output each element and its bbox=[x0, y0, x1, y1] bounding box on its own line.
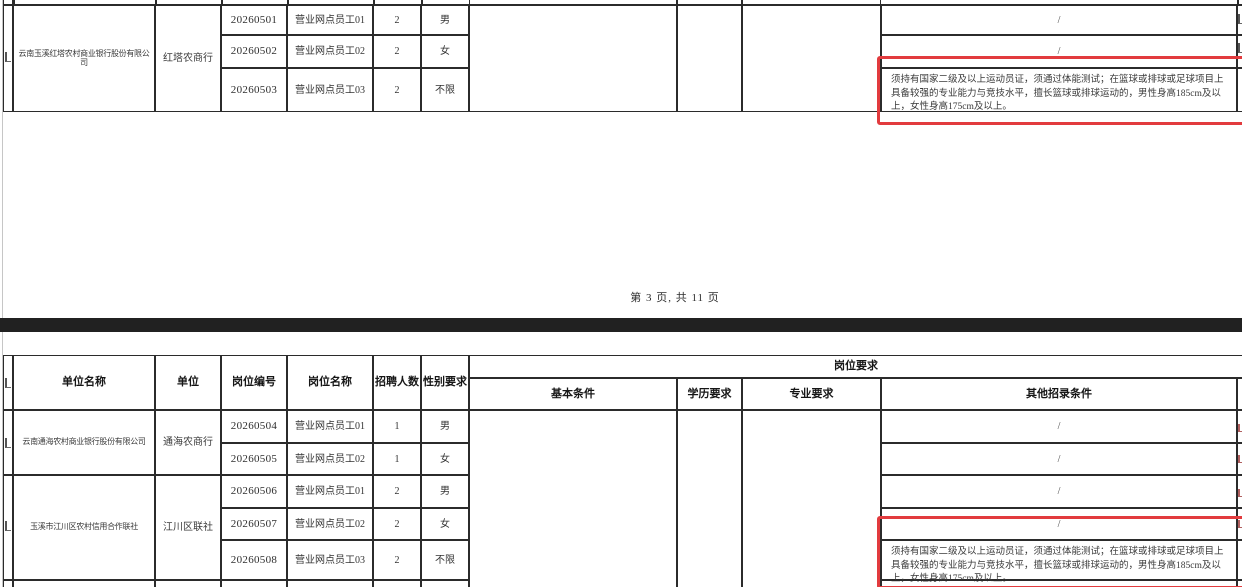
post-code-cell: 20260504 bbox=[221, 410, 287, 443]
clipped-text-fragment bbox=[1238, 424, 1242, 432]
post-name-cell: 营业网点员工03 bbox=[287, 68, 373, 112]
post-name-cell: 营业网点员工02 bbox=[287, 443, 373, 475]
post-name-cell: 营业网点员工03 bbox=[287, 540, 373, 580]
clipped-column-cell bbox=[1237, 378, 1242, 410]
clipped-row-cell bbox=[221, 580, 287, 587]
gender-cell: 女 bbox=[421, 443, 469, 475]
other-conditions-cell: / bbox=[881, 475, 1237, 508]
recruit-count-cell: 2 bbox=[373, 5, 421, 35]
basic-conditions-empty-cell bbox=[469, 410, 677, 587]
header-unit-name: 单位名称 bbox=[13, 355, 155, 410]
clipped-text-fragment bbox=[1238, 489, 1242, 497]
clipped-text-fragment bbox=[5, 378, 11, 388]
post-code-cell: 20260505 bbox=[221, 443, 287, 475]
basic-conditions-empty-cell bbox=[469, 0, 677, 112]
red-highlight-box bbox=[877, 56, 1242, 125]
unit-short-name-cell: 红塔农商行 bbox=[155, 5, 221, 112]
other-conditions-cell: / bbox=[881, 5, 1237, 35]
company-name-cell: 云南通海农村商业银行股份有限公司 bbox=[13, 410, 155, 475]
table-border-line bbox=[13, 0, 15, 4]
company-name-cell: 云南玉溪红塔农村商业银行股份有限公司 bbox=[13, 5, 155, 112]
company-name-cell: 玉溪市江川区农村信用合作联社 bbox=[13, 475, 155, 580]
recruit-count-cell: 2 bbox=[373, 540, 421, 580]
header-post-name: 岗位名称 bbox=[287, 355, 373, 410]
table-border-line bbox=[155, 0, 157, 4]
table-border-line bbox=[373, 0, 375, 4]
recruit-count-cell: 1 bbox=[373, 410, 421, 443]
gender-cell: 女 bbox=[421, 35, 469, 68]
recruit-count-cell: 2 bbox=[373, 475, 421, 508]
header-education-req: 学历要求 bbox=[677, 378, 742, 410]
header-other-conditions: 其他招录条件 bbox=[881, 378, 1237, 410]
clipped-row-cell bbox=[13, 580, 155, 587]
clipped-text-fragment bbox=[5, 521, 11, 531]
gender-cell: 男 bbox=[421, 5, 469, 35]
major-req-empty-cell bbox=[742, 0, 881, 112]
recruit-count-cell: 1 bbox=[373, 443, 421, 475]
gender-cell: 男 bbox=[421, 410, 469, 443]
post-name-cell: 营业网点员工02 bbox=[287, 35, 373, 68]
table-border-line bbox=[221, 0, 223, 4]
clipped-text-fragment bbox=[1238, 455, 1242, 463]
post-name-cell: 营业网点员工02 bbox=[287, 508, 373, 540]
recruit-count-cell: 2 bbox=[373, 68, 421, 112]
recruit-count-cell: 2 bbox=[373, 35, 421, 68]
header-post-requirements-group: 岗位要求 bbox=[469, 355, 1242, 378]
other-conditions-cell: / bbox=[881, 410, 1237, 443]
clipped-row-cell bbox=[3, 580, 13, 587]
red-highlight-box bbox=[877, 516, 1242, 587]
recruit-count-cell: 2 bbox=[373, 508, 421, 540]
clipped-text-fragment bbox=[1238, 14, 1242, 24]
clipped-row-cell bbox=[373, 580, 421, 587]
header-recruit-count: 招聘人数 bbox=[373, 355, 421, 410]
other-conditions-cell: / bbox=[881, 443, 1237, 475]
clipped-text-fragment bbox=[5, 438, 11, 448]
header-unit: 单位 bbox=[155, 355, 221, 410]
post-code-cell: 20260503 bbox=[221, 68, 287, 112]
gender-cell: 男 bbox=[421, 475, 469, 508]
post-name-cell: 营业网点员工01 bbox=[287, 475, 373, 508]
education-req-empty-cell bbox=[677, 0, 742, 112]
clipped-row-cell bbox=[421, 580, 469, 587]
clipped-row-cell bbox=[155, 580, 221, 587]
unit-short-name-cell: 通海农商行 bbox=[155, 410, 221, 475]
unit-short-name-cell: 江川区联社 bbox=[155, 475, 221, 580]
document-viewer: 云南玉溪红塔农村商业银行股份有限公司 红塔农商行 20260501 营业网点员工… bbox=[0, 0, 1242, 587]
page-separator-bar bbox=[0, 318, 1242, 332]
table-border-line bbox=[421, 0, 423, 4]
page-number: 第 3 页, 共 11 页 bbox=[350, 289, 1000, 305]
header-major-req: 专业要求 bbox=[742, 378, 881, 410]
post-name-cell: 营业网点员工01 bbox=[287, 410, 373, 443]
post-code-cell: 20260507 bbox=[221, 508, 287, 540]
table-border-line bbox=[287, 0, 289, 4]
post-code-cell: 20260501 bbox=[221, 5, 287, 35]
education-req-empty-cell bbox=[677, 410, 742, 587]
clipped-text-fragment bbox=[5, 52, 11, 62]
gender-cell: 不限 bbox=[421, 68, 469, 112]
post-code-cell: 20260502 bbox=[221, 35, 287, 68]
major-req-empty-cell bbox=[742, 410, 881, 587]
table-border-line bbox=[1237, 0, 1239, 4]
post-code-cell: 20260508 bbox=[221, 540, 287, 580]
header-gender-req: 性别要求 bbox=[421, 355, 469, 410]
gender-cell: 女 bbox=[421, 508, 469, 540]
clipped-text-fragment bbox=[1238, 43, 1242, 53]
header-post-code: 岗位编号 bbox=[221, 355, 287, 410]
gender-cell: 不限 bbox=[421, 540, 469, 580]
header-basic-conditions: 基本条件 bbox=[469, 378, 677, 410]
post-code-cell: 20260506 bbox=[221, 475, 287, 508]
post-name-cell: 营业网点员工01 bbox=[287, 5, 373, 35]
clipped-row-cell bbox=[287, 580, 373, 587]
